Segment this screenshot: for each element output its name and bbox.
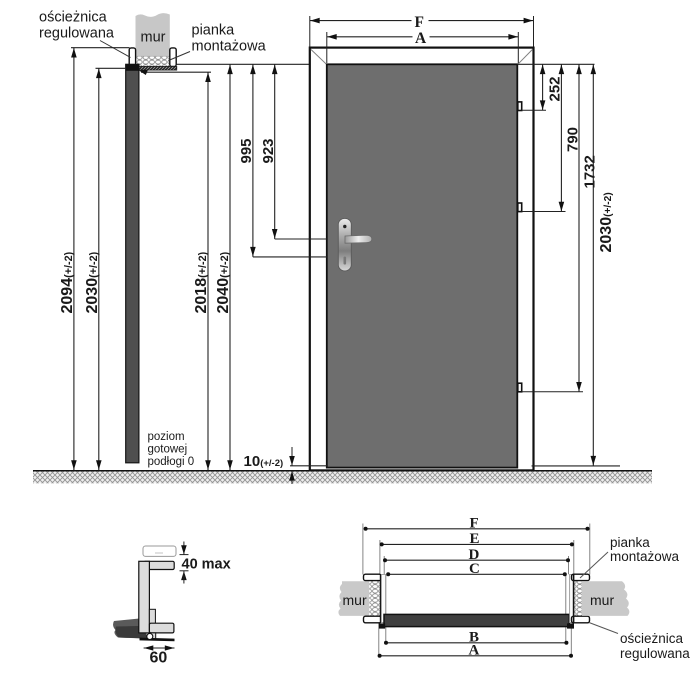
svg-text:ościeżnica: ościeżnica <box>620 631 684 646</box>
svg-text:regulowana: regulowana <box>620 646 690 661</box>
svg-text:regulowana: regulowana <box>39 26 115 42</box>
svg-text:mur: mur <box>141 30 166 46</box>
svg-text:montażowa: montażowa <box>192 39 267 55</box>
svg-text:E: E <box>470 531 480 547</box>
svg-text:pianka: pianka <box>610 535 650 550</box>
svg-text:60: 60 <box>150 650 168 667</box>
svg-text:923: 923 <box>260 138 277 163</box>
svg-text:A: A <box>415 30 427 47</box>
svg-text:mur: mur <box>343 592 367 608</box>
svg-text:ościeżnica: ościeżnica <box>39 10 108 26</box>
svg-text:F: F <box>415 14 424 31</box>
svg-text:gotowej: gotowej <box>148 444 188 456</box>
svg-text:pianka: pianka <box>192 23 236 39</box>
svg-text:C: C <box>469 561 480 577</box>
svg-text:A: A <box>469 642 480 658</box>
svg-text:F: F <box>470 516 479 532</box>
svg-text:995: 995 <box>238 138 255 163</box>
svg-text:mur: mur <box>590 592 614 608</box>
svg-text:montażowa: montażowa <box>610 549 680 564</box>
svg-text:poziom: poziom <box>148 431 185 443</box>
svg-text:1732: 1732 <box>582 155 599 188</box>
svg-text:podłogi 0: podłogi 0 <box>148 456 195 468</box>
svg-text:40 max: 40 max <box>182 557 231 573</box>
